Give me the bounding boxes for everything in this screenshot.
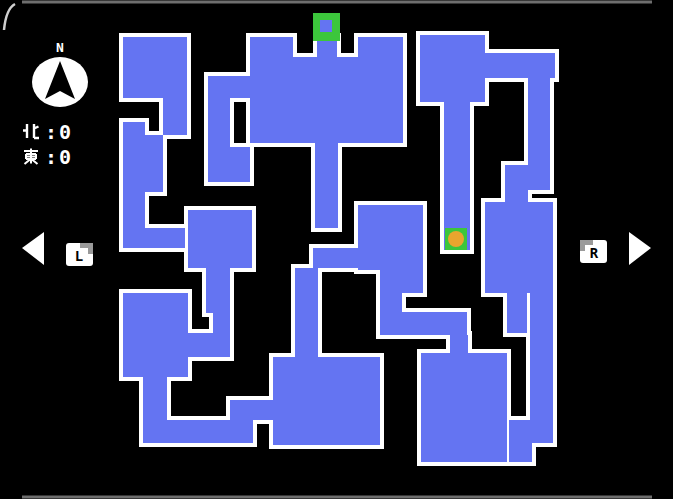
kanji-east-icon	[24, 149, 38, 165]
maze-floor	[485, 202, 553, 293]
maze-floor	[509, 420, 532, 462]
l-button[interactable]: L	[66, 243, 93, 266]
stat-east-separator: :	[45, 145, 57, 169]
maze-floor	[188, 210, 252, 268]
maze-floor	[402, 312, 467, 335]
maze-floor	[208, 76, 230, 182]
maze-floor	[315, 143, 338, 228]
maze-floor	[358, 205, 423, 270]
maze-floor	[420, 35, 485, 102]
compass-north-label: N	[56, 40, 64, 55]
l-button-shade	[88, 247, 93, 254]
maze-floor	[507, 293, 527, 333]
maze-floor	[145, 135, 163, 192]
entrance-marker-hole	[320, 20, 332, 32]
maze-floor	[213, 313, 230, 333]
maze-floor	[230, 147, 250, 182]
maze-floor	[123, 37, 187, 98]
maze-floor	[123, 293, 188, 377]
maze-floor	[380, 293, 402, 335]
maze-floor	[421, 353, 507, 462]
maze-floor	[444, 102, 470, 250]
maze-floor	[505, 165, 528, 205]
maze-floor	[230, 400, 273, 420]
maze-floor	[295, 292, 318, 357]
stat-east-value: 0	[59, 145, 71, 169]
maze-floor	[273, 357, 380, 445]
maze-floor	[295, 268, 318, 292]
maze-floor	[163, 98, 187, 135]
stat-north-value: 0	[59, 120, 71, 144]
maze-floor	[250, 57, 403, 143]
map-screen: N : 0 : 0 L	[0, 0, 673, 499]
maze-floor	[485, 53, 555, 78]
maze-floor	[188, 333, 230, 357]
r-button[interactable]: R	[580, 240, 607, 263]
maze-floor	[123, 228, 185, 248]
maze-floor	[380, 270, 423, 293]
stat-north-separator: :	[45, 120, 57, 144]
maze-floor	[530, 293, 553, 443]
maze-floor	[313, 248, 358, 268]
l-button-label: L	[75, 248, 83, 264]
r-button-shade	[580, 244, 585, 251]
maze-floor	[206, 268, 230, 313]
maze-floor	[528, 78, 550, 190]
r-button-label: R	[590, 245, 599, 261]
player-position-dot	[448, 231, 464, 247]
